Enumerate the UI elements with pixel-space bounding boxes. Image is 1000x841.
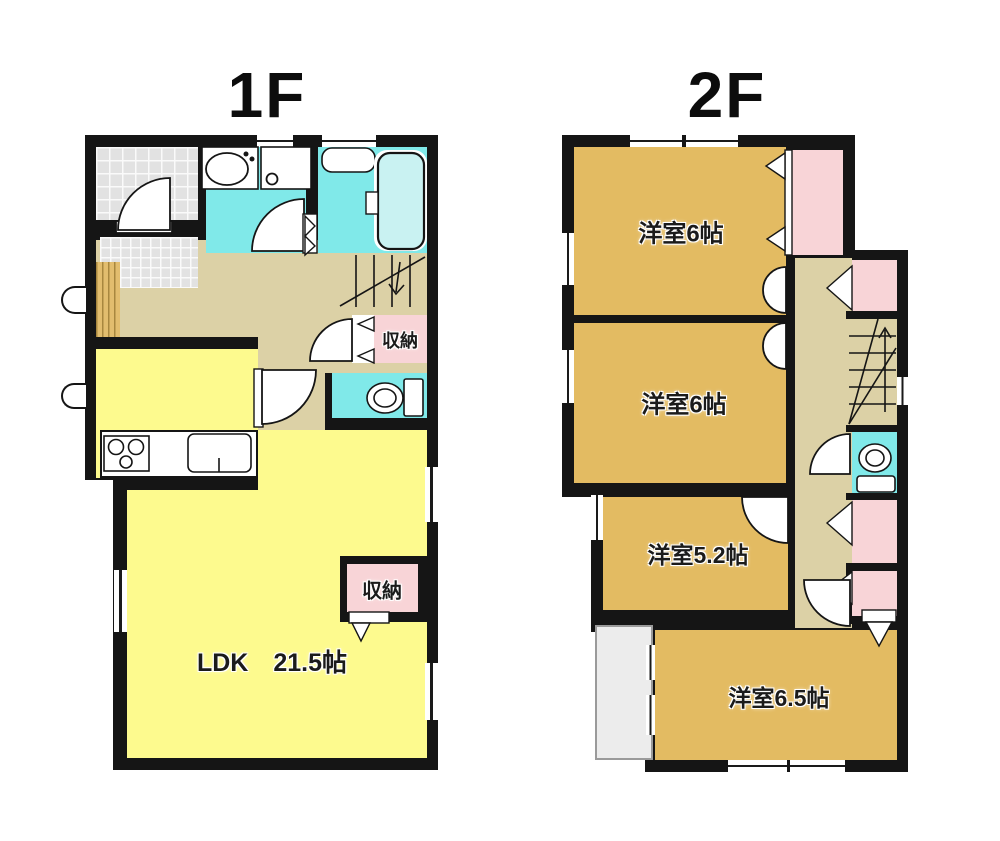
stairs-area-2f	[848, 319, 897, 425]
wall-kitchen-top	[90, 337, 250, 349]
closet-4	[852, 571, 897, 616]
closet-3	[852, 500, 897, 563]
window-ldk-left	[114, 570, 127, 632]
wall-2f-c	[846, 493, 897, 500]
wall-2f-b	[846, 425, 897, 432]
roof-area	[595, 625, 653, 760]
stairs-area-1f	[338, 253, 427, 308]
room-label-bedroom-middle: 洋室6帖	[641, 385, 726, 420]
window-2f-bottom-2	[790, 760, 845, 772]
window-2f-top-1	[630, 135, 682, 147]
room-label-bedroom-6-5: 洋室6.5帖	[729, 679, 830, 713]
floor-title-2f: 2F	[688, 58, 767, 132]
hall-corridor	[258, 373, 325, 430]
toilet-room-1f	[332, 373, 427, 418]
window-2f-room4-left-2	[646, 695, 655, 735]
ldk-upper	[258, 430, 427, 492]
kitchen-counter	[100, 430, 258, 478]
room-label-ldk: LDK 21.5帖	[197, 643, 347, 679]
storage-door-1f	[352, 315, 374, 363]
wall-2f-a	[846, 311, 897, 319]
window-2f-left-2	[562, 350, 574, 403]
wall-toilet-bottom	[332, 418, 427, 430]
window-2f-left-1	[562, 233, 574, 285]
window-2f-left-3	[591, 495, 603, 540]
window-ldk-right-1	[425, 467, 438, 522]
hall-2f	[795, 258, 852, 628]
window-bathroom-top	[322, 135, 376, 147]
closet-2	[852, 260, 897, 311]
wall-2f-d	[846, 563, 897, 571]
wall-2f-f	[846, 616, 897, 624]
exterior-door-hall	[61, 286, 86, 314]
floor-title-1f: 1F	[228, 58, 307, 132]
toilet-room-2f	[852, 432, 897, 493]
exterior-door-kitchen	[61, 383, 86, 409]
floorplan-canvas: 1F 2F LDK 21.5帖 収納 収納 洋室6帖 洋室6帖 洋室5.2帖 洋…	[0, 0, 1000, 841]
window-2f-stairs	[897, 377, 908, 405]
wall-toilet-left	[325, 373, 332, 430]
washroom-1f	[206, 147, 306, 253]
window-ldk-right-2	[425, 663, 438, 720]
window-2f-room4-left-1	[646, 645, 655, 680]
window-washroom-top	[257, 135, 293, 147]
closet-north	[790, 150, 843, 255]
room-label-storage-hall: 収納	[382, 327, 418, 353]
wood-deck-step	[96, 262, 120, 337]
ldk-main	[127, 490, 427, 758]
bathroom-1f	[318, 147, 427, 253]
room-label-bedroom-5-2: 洋室5.2帖	[648, 536, 749, 570]
window-2f-top-2	[686, 135, 738, 147]
room-label-storage-ldk: 収納	[362, 575, 402, 604]
entrance-porch-tile	[96, 147, 198, 220]
room-label-bedroom-north: 洋室6帖	[638, 214, 723, 249]
window-2f-bottom-1	[728, 760, 787, 772]
